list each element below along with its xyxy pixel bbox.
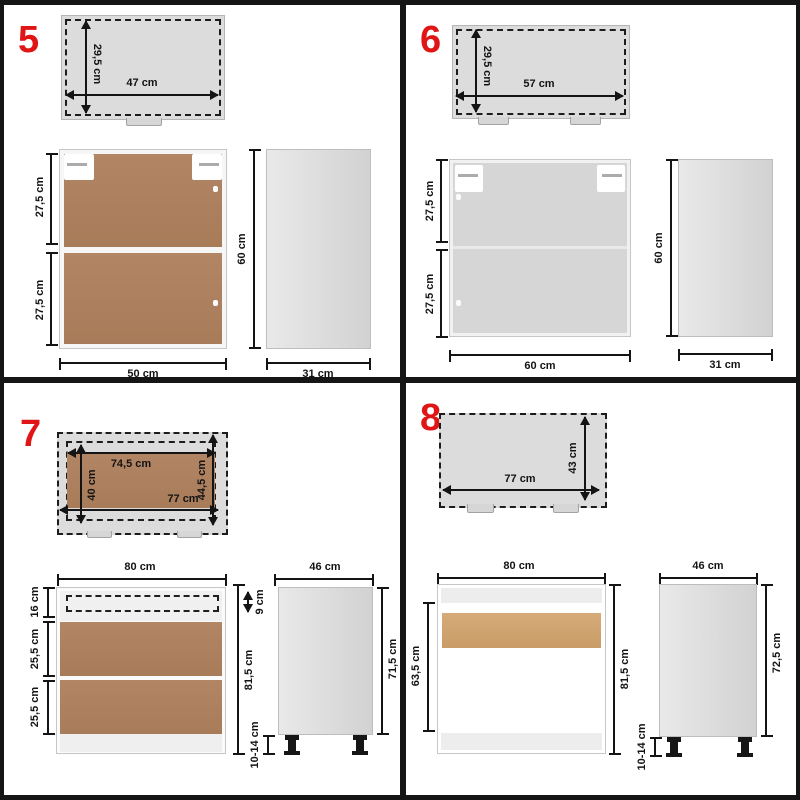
panel-5: 5 29,5 cm 47 cm 27,5 cm 27,5 cm 50 cm 60… (4, 5, 400, 377)
dim-front-upper-6: 27,5 cm (424, 181, 436, 221)
dim-line-depth (266, 362, 371, 364)
dim-line-width (59, 362, 227, 364)
dim-line-body-height (765, 584, 767, 737)
dim-top-depth-5: 29,5 cm (91, 44, 103, 84)
wall-mount-tab (478, 117, 509, 125)
dim-front-upper-5: 27,5 cm (34, 177, 46, 217)
dim-side-height-6: 60 cm (653, 232, 665, 263)
adjustable-leg-icon (666, 737, 682, 757)
dim-top-left-depth-7: 40 cm (86, 469, 98, 500)
dim-line-lower (50, 252, 52, 346)
dim-top-depth-8: 43 cm (567, 442, 579, 473)
dim-line-mid (47, 621, 49, 677)
panel-5-number: 5 (18, 21, 39, 59)
dim-side-depth-7: 46 cm (309, 561, 340, 573)
top-view-5-dashed-outline (65, 19, 221, 116)
dim-top-width-7: 77 cm (167, 493, 198, 505)
dim-line-upper (440, 159, 442, 243)
door-pin-icon (213, 186, 218, 192)
side-view-5 (266, 149, 371, 349)
door-pin-icon (456, 194, 461, 200)
dim-top-depth-6: 29,5 cm (481, 46, 493, 86)
door-panel-lower (64, 253, 222, 344)
dim-side-depth-6: 31 cm (709, 359, 740, 371)
dim-front-width-7: 80 cm (124, 561, 155, 573)
width-arrow-icon (456, 95, 623, 97)
drawer-height-arrow-icon (247, 592, 249, 612)
dim-side-depth-5: 31 cm (302, 368, 333, 377)
dim-line-opening (427, 602, 429, 732)
adjustable-leg-icon (737, 737, 753, 757)
dim-drawer-height-7: 9 cm (254, 589, 266, 614)
dim-line-lower (440, 249, 442, 338)
dim-front-lower-6: 27,5 cm (424, 274, 436, 314)
drawer-front-wood (442, 613, 601, 648)
outer-width-arrow-icon (60, 509, 218, 511)
front-view-6 (449, 159, 631, 337)
panel-7: 7 74,5 cm 40 cm 44,5 cm 77 cm 80 cm 16 c… (4, 383, 400, 795)
side-view-7 (278, 587, 373, 735)
dim-top-inner-width-7: 74,5 cm (111, 458, 151, 470)
door-panel-upper (60, 622, 222, 676)
inner-width-arrow-icon (68, 452, 215, 454)
dim-line-width (449, 354, 631, 356)
front-view-5 (59, 149, 227, 349)
dim-front-height-8: 81,5 cm (619, 649, 631, 689)
dim-line-height (253, 149, 255, 349)
panel-8: 8 43 cm 77 cm 80 cm 63,5 cm 81,5 cm 46 c… (406, 383, 796, 795)
door-panel-lower (60, 680, 222, 734)
side-view-6 (678, 159, 773, 337)
panel-7-number: 7 (20, 415, 41, 453)
wall-mount-tab (126, 118, 162, 126)
front-view-7 (56, 587, 226, 754)
mount-tab (467, 504, 494, 513)
width-arrow-icon (66, 94, 218, 96)
hinge-left-icon (455, 165, 483, 192)
depth-arrow-icon (584, 417, 586, 500)
depth-arrow-icon (475, 30, 477, 112)
front-view-8 (437, 584, 606, 754)
dim-front-width-8: 80 cm (503, 560, 534, 572)
cabinet-dimension-sheet: 5 29,5 cm 47 cm 27,5 cm 27,5 cm 50 cm 60… (0, 0, 800, 800)
door-pin-icon (456, 300, 461, 306)
hinge-left-icon (64, 154, 94, 180)
hinge-right-icon (192, 154, 222, 180)
dim-top-width-6: 57 cm (523, 78, 554, 90)
dim-side-depth-8: 46 cm (692, 560, 723, 572)
side-view-8 (659, 584, 757, 737)
dim-side-height-8: 72,5 cm (771, 633, 783, 673)
dim-top-width-5: 47 cm (126, 77, 157, 89)
dim-front-height-7: 81,5 cm (243, 650, 255, 690)
panel-6-number: 6 (420, 21, 441, 59)
plinth-zone (60, 734, 222, 752)
depth-arrow-icon (85, 21, 87, 113)
dim-front-seg1-7: 16 cm (29, 586, 41, 617)
dim-front-width-6: 60 cm (524, 360, 555, 372)
dim-side-height-7: 71,5 cm (387, 639, 399, 679)
door-pin-icon (213, 300, 218, 306)
hinge-right-icon (597, 165, 625, 192)
dim-line-body-height (381, 587, 383, 735)
dim-line-low (47, 680, 49, 735)
dim-line-total-height (237, 584, 239, 755)
dim-line-depth (274, 578, 374, 580)
adjustable-leg-icon (284, 735, 300, 755)
dim-line-drawer (47, 587, 49, 618)
dim-line-height (670, 159, 672, 337)
dim-line-depth (678, 353, 773, 355)
top-rail-zone (441, 588, 602, 603)
dim-line-legs (654, 737, 656, 757)
dim-line-total-height (613, 584, 615, 755)
mount-tab (553, 504, 579, 513)
mount-tab (177, 531, 202, 538)
dim-front-width-5: 50 cm (127, 368, 158, 377)
dim-line-width (437, 577, 606, 579)
dim-front-lower-5: 27,5 cm (34, 280, 46, 320)
dim-line-legs (267, 735, 269, 755)
shelf-line (453, 246, 627, 249)
dim-top-width-8: 77 cm (504, 473, 535, 485)
dim-front-seg2-7: 25,5 cm (29, 629, 41, 669)
panel-6: 6 29,5 cm 57 cm 27,5 cm 27,5 cm 60 cm 60… (406, 5, 796, 377)
dim-front-seg3-7: 25,5 cm (29, 687, 41, 727)
dim-line-width (57, 578, 227, 580)
dim-leg-height-7: 10-14 cm (249, 721, 261, 768)
dim-line-depth (659, 577, 758, 579)
panel-8-number: 8 (420, 399, 441, 437)
wall-mount-tab (570, 117, 601, 125)
plinth-zone (441, 733, 602, 750)
inner-depth-arrow-icon (80, 445, 82, 523)
dim-front-left-8: 63,5 cm (410, 646, 422, 686)
dim-leg-height-8: 10-14 cm (636, 723, 648, 770)
adjustable-leg-icon (352, 735, 368, 755)
dim-line-upper (50, 153, 52, 245)
mount-tab (87, 531, 112, 538)
dim-side-height-5: 60 cm (236, 233, 248, 264)
drawer-dashed-outline (66, 595, 219, 612)
width-arrow-icon (443, 489, 599, 491)
